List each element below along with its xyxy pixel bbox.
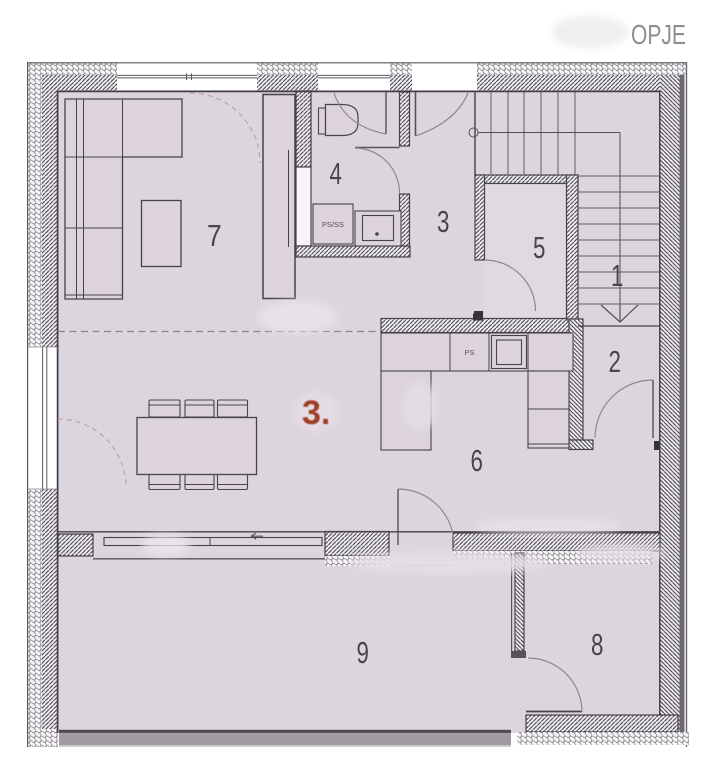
svg-text:3: 3 [437,204,449,238]
svg-text:4: 4 [330,156,342,190]
svg-text:OPJE: OPJE [631,20,686,51]
svg-text:7: 7 [207,219,222,253]
svg-text:9: 9 [357,635,369,669]
svg-text:PS/SS: PS/SS [322,220,344,229]
svg-text:PS: PS [464,348,474,357]
svg-text:5: 5 [533,230,545,264]
svg-text:3.: 3. [302,394,330,432]
svg-text:6: 6 [471,443,483,477]
svg-text:8: 8 [591,627,603,661]
svg-text:2: 2 [609,344,621,378]
svg-text:1: 1 [611,258,623,292]
